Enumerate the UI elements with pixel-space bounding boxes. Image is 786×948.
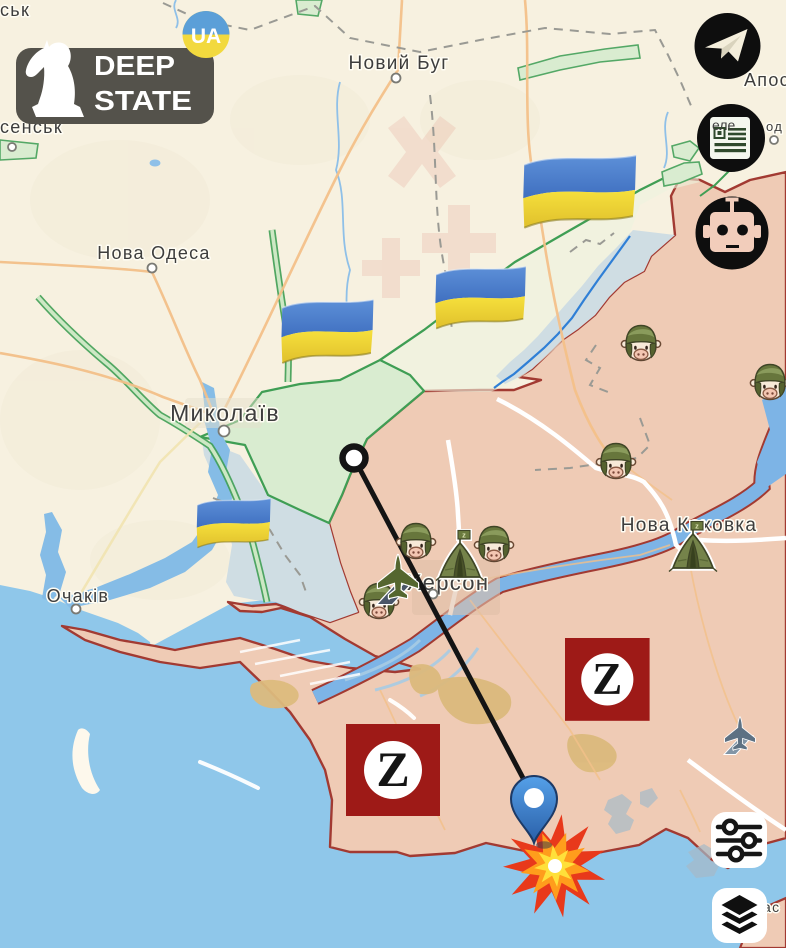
svg-text:Нова Одеса: Нова Одеса [97, 243, 211, 263]
svg-text:еле: еле [712, 117, 735, 133]
svg-text:Апос: Апос [744, 70, 786, 90]
svg-text:DEEP: DEEP [94, 50, 175, 81]
svg-text:ськ: ськ [0, 0, 30, 20]
svg-text:од: од [766, 119, 783, 134]
svg-text:Очаків: Очаків [47, 586, 110, 606]
svg-text:Миколаїв: Миколаїв [170, 400, 280, 426]
svg-text:UA: UA [191, 25, 221, 48]
svg-text:STATE: STATE [94, 85, 192, 116]
svg-text:Новий Буг: Новий Буг [348, 53, 449, 74]
